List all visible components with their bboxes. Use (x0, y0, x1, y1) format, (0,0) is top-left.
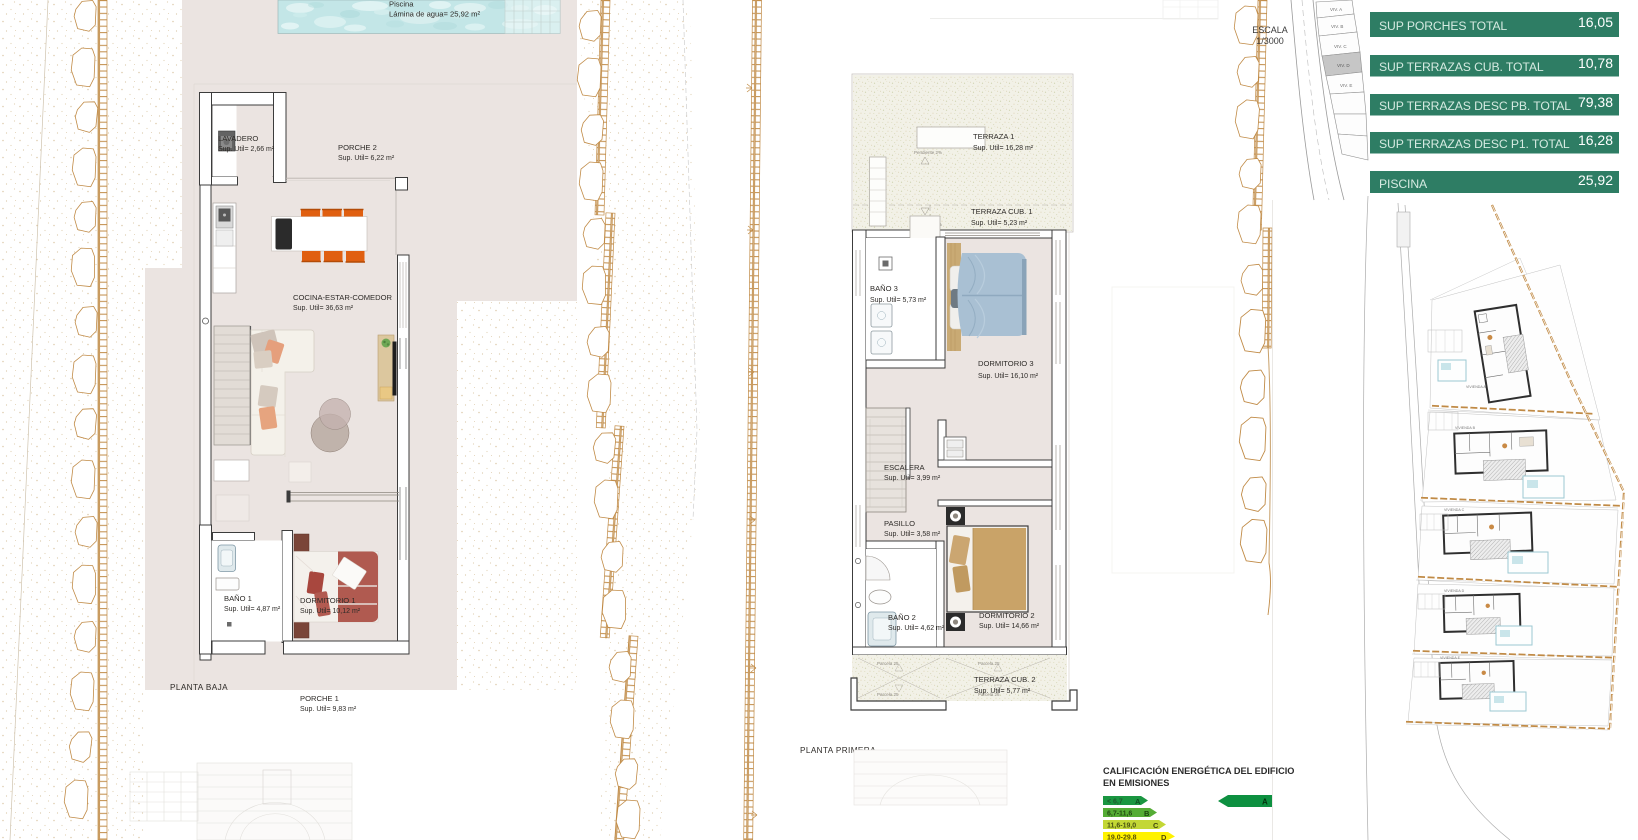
svg-text:Sup. Util= 4,62 m²: Sup. Util= 4,62 m² (888, 625, 945, 632)
svg-text:11,6-19,0: 11,6-19,0 (1107, 823, 1136, 830)
svg-text:PORCHE 1: PORCHE 1 (300, 694, 339, 703)
svg-text:Sup. Util= 4,87 m²: Sup. Util= 4,87 m² (224, 606, 281, 613)
svg-text:DORMITORIO 1: DORMITORIO 1 (300, 596, 356, 605)
svg-text:DORMITORIO 3: DORMITORIO 3 (978, 359, 1034, 368)
svg-text:6,7-11,6: 6,7-11,6 (1107, 811, 1132, 818)
svg-text:PLANTA BAJA: PLANTA BAJA (170, 683, 228, 692)
svg-text:TERRAZA CUB. 2: TERRAZA CUB. 2 (974, 675, 1036, 684)
svg-text:Sup. Util= 2,66 m²: Sup. Util= 2,66 m² (218, 146, 275, 153)
svg-text:BAÑO 3: BAÑO 3 (870, 284, 898, 293)
svg-text:SUP PORCHES TOTAL: SUP PORCHES TOTAL (1379, 19, 1507, 33)
svg-text:TERRAZA 1: TERRAZA 1 (973, 132, 1014, 141)
svg-text:Pendiente 2%: Pendiente 2% (914, 150, 942, 155)
svg-text:VIVIENDA A: VIVIENDA A (1466, 385, 1486, 389)
svg-text:Sup. Util= 14,66 m²: Sup. Util= 14,66 m² (979, 623, 1040, 630)
svg-text:VIVIENDA D: VIVIENDA D (1444, 589, 1465, 593)
svg-text:Sup. Util= 9,83 m²: Sup. Util= 9,83 m² (300, 706, 357, 713)
svg-text:Parcela 25: Parcela 25 (877, 661, 899, 666)
svg-text:VIV. C: VIV. C (1334, 44, 1347, 49)
svg-text:SUP TERRAZAS DESC PB. TOTAL: SUP TERRAZAS DESC PB. TOTAL (1379, 99, 1571, 113)
svg-text:VIVIENDA E: VIVIENDA E (1440, 656, 1461, 660)
svg-text:Sup. Util= 3,58 m²: Sup. Util= 3,58 m² (884, 531, 941, 538)
svg-text:C: C (1153, 821, 1159, 830)
svg-text:PORCHE 2: PORCHE 2 (338, 143, 377, 152)
svg-text:Sup. Util= 5,77 m²: Sup. Util= 5,77 m² (974, 688, 1031, 695)
svg-text:Piscina: Piscina (389, 0, 414, 9)
svg-text:CALIFICACIÓN ENERGÉTICA DEL ED: CALIFICACIÓN ENERGÉTICA DEL EDIFICIO (1103, 765, 1294, 776)
svg-text:Parcela 25: Parcela 25 (978, 661, 1000, 666)
svg-text:VIV. E: VIV. E (1340, 83, 1352, 88)
svg-text:< 6,7: < 6,7 (1107, 799, 1123, 806)
svg-text:LAVADERO: LAVADERO (218, 134, 258, 143)
svg-text:Sup. Util= 36,63 m²: Sup. Util= 36,63 m² (293, 305, 354, 312)
svg-text:VIV. D: VIV. D (1337, 63, 1350, 68)
svg-text:16,28: 16,28 (1578, 132, 1613, 148)
svg-text:Sup. Util= 16,28 m²: Sup. Util= 16,28 m² (973, 145, 1034, 152)
svg-text:D: D (1161, 833, 1167, 840)
svg-text:1/3000: 1/3000 (1256, 36, 1284, 46)
svg-text:VIV. B: VIV. B (1331, 24, 1343, 29)
svg-text:VIV. A: VIV. A (1330, 7, 1342, 12)
svg-text:COCINA-ESTAR-COMEDOR: COCINA-ESTAR-COMEDOR (293, 293, 393, 302)
svg-text:Lámina de agua= 25,92 m²: Lámina de agua= 25,92 m² (389, 10, 480, 19)
svg-text:Sup. Util= 3,99 m²: Sup. Util= 3,99 m² (884, 475, 941, 482)
svg-text:16,05: 16,05 (1578, 14, 1613, 30)
svg-text:Parcela 25: Parcela 25 (877, 692, 899, 697)
svg-text:EN EMISIONES: EN EMISIONES (1103, 778, 1169, 788)
svg-text:ESCALA: ESCALA (1252, 25, 1288, 35)
svg-text:VIVIENDA C: VIVIENDA C (1444, 508, 1465, 512)
svg-text:TERRAZA CUB. 1: TERRAZA CUB. 1 (971, 207, 1033, 216)
svg-text:Sup. Util= 5,23 m²: Sup. Util= 5,23 m² (971, 220, 1028, 227)
svg-text:DORMITORIO 2: DORMITORIO 2 (979, 611, 1035, 620)
svg-text:19,0-29,8: 19,0-29,8 (1107, 835, 1137, 840)
svg-text:PASILLO: PASILLO (884, 519, 915, 528)
svg-text:Sup. Util= 16,10 m²: Sup. Util= 16,10 m² (978, 373, 1039, 380)
svg-text:Sup. Util= 5,73 m²: Sup. Util= 5,73 m² (870, 297, 927, 304)
svg-text:PISCINA: PISCINA (1379, 177, 1428, 191)
svg-text:A: A (1135, 797, 1141, 806)
svg-text:Sup. Util= 10,12 m²: Sup. Util= 10,12 m² (300, 608, 361, 615)
svg-text:SUP TERRAZAS DESC P1. TOTAL: SUP TERRAZAS DESC P1. TOTAL (1379, 137, 1570, 151)
svg-text:25,92: 25,92 (1578, 172, 1613, 188)
svg-text:BAÑO 2: BAÑO 2 (888, 613, 916, 622)
svg-text:Sup. Util= 6,22 m²: Sup. Util= 6,22 m² (338, 155, 395, 162)
svg-text:79,38: 79,38 (1578, 94, 1613, 110)
svg-text:10,78: 10,78 (1578, 55, 1613, 71)
svg-text:BAÑO 1: BAÑO 1 (224, 594, 252, 603)
svg-text:ESCALERA: ESCALERA (884, 463, 925, 472)
svg-text:A: A (1262, 798, 1268, 807)
svg-text:SUP TERRAZAS CUB. TOTAL: SUP TERRAZAS CUB. TOTAL (1379, 60, 1544, 74)
svg-text:B: B (1144, 809, 1150, 818)
